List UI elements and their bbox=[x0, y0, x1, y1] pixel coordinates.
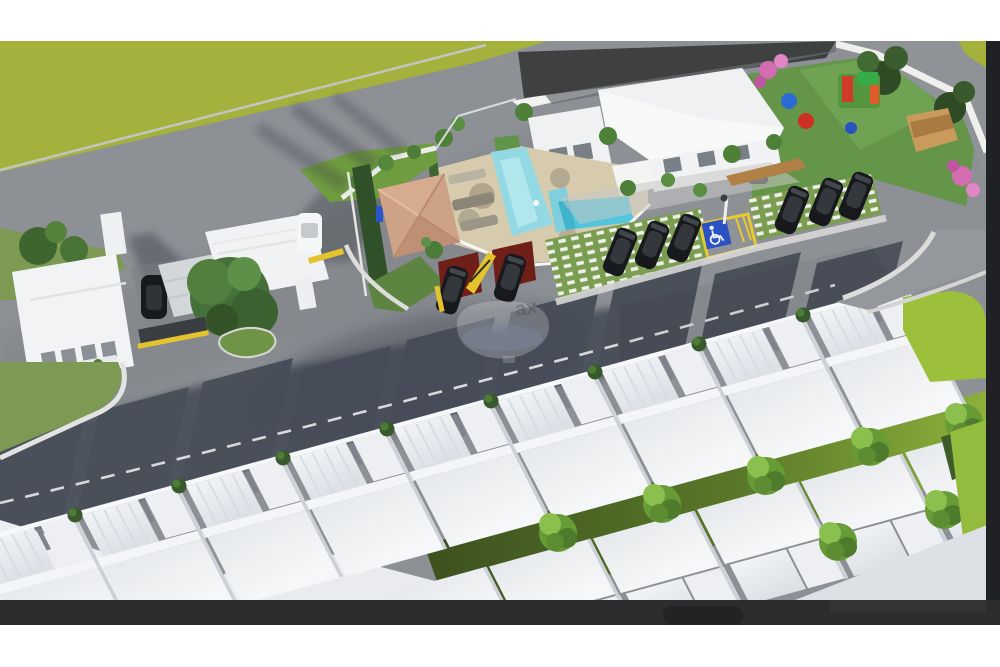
svg-text:ax: ax bbox=[514, 296, 539, 321]
